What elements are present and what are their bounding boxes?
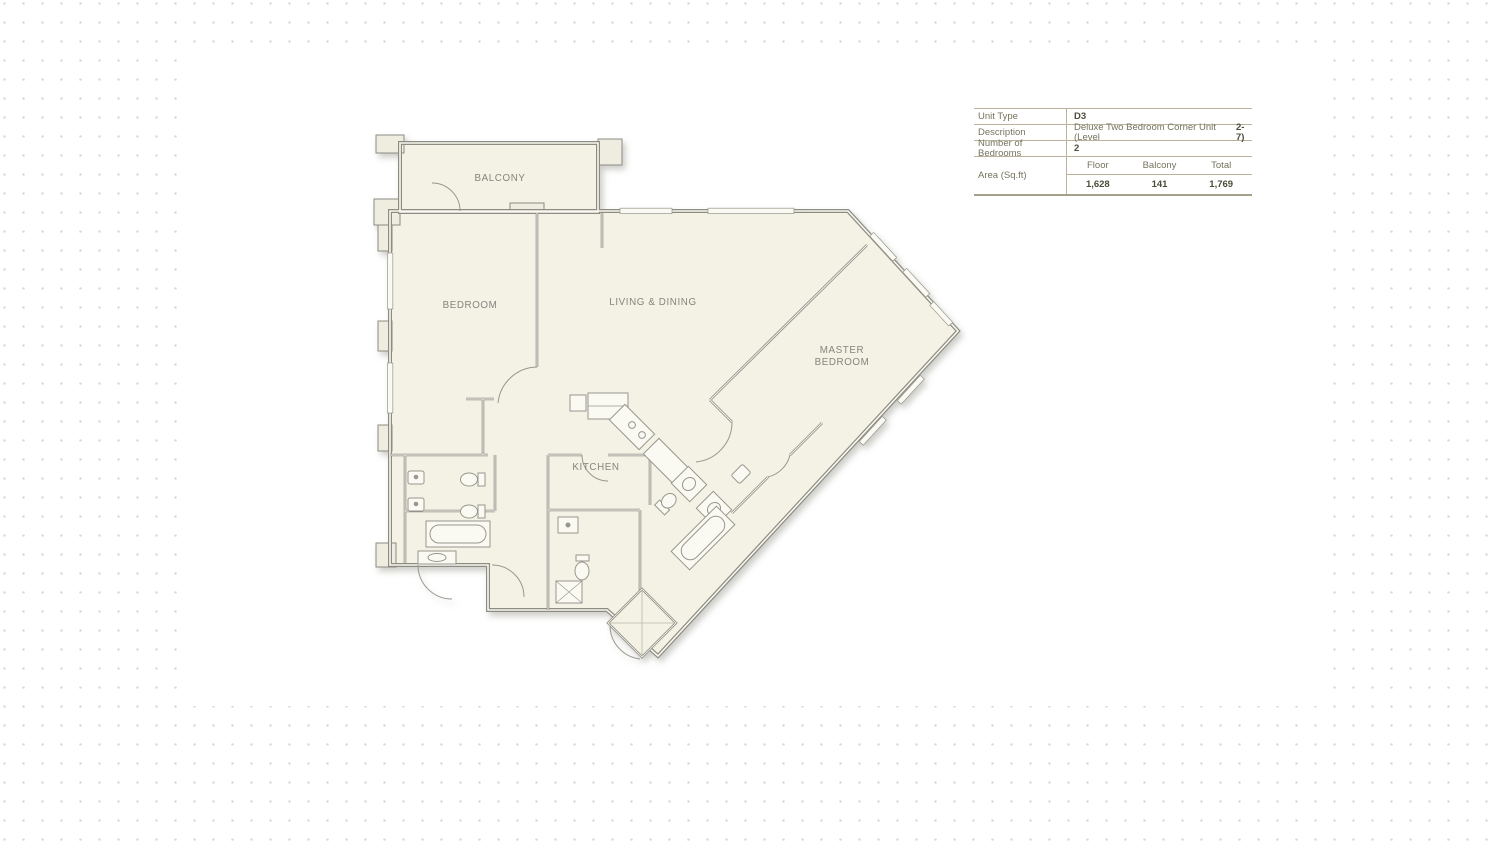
unit-info-table: Unit Type D3 Description Deluxe Two Bedr… xyxy=(974,108,1252,196)
area-value-total: 1,769 xyxy=(1190,180,1252,190)
description-value: Deluxe Two Bedroom Corner Unit (Level 2-… xyxy=(1066,125,1252,140)
room-label-bedroom: BEDROOM xyxy=(443,300,498,311)
room-label-master-line2: BEDROOM xyxy=(815,357,870,368)
area-col-total: Total xyxy=(1190,161,1252,171)
description-label: Description xyxy=(974,128,1066,138)
area-column-headers: Floor Balcony Total xyxy=(1067,157,1252,175)
floor-plan-svg: BALCONY BEDROOM LIVING & DINING MASTER B… xyxy=(370,125,990,685)
bedrooms-value: 2 xyxy=(1066,141,1252,156)
area-col-floor: Floor xyxy=(1067,161,1129,171)
room-label-kitchen: KITCHEN xyxy=(572,462,619,473)
floor-plan-drawing: BALCONY BEDROOM LIVING & DINING MASTER B… xyxy=(374,135,958,659)
area-subtable: Floor Balcony Total 1,628 141 1,769 xyxy=(1066,157,1252,194)
area-values: 1,628 141 1,769 xyxy=(1067,175,1252,194)
area-value-balcony: 141 xyxy=(1129,180,1191,190)
room-label-master-line1: MASTER xyxy=(820,345,864,356)
bedrooms-label: Number of Bedrooms xyxy=(974,139,1066,158)
table-row-area: Area (Sq.ft) Floor Balcony Total 1,628 1… xyxy=(974,156,1252,196)
unit-type-label: Unit Type xyxy=(974,112,1066,122)
area-value-floor: 1,628 xyxy=(1067,180,1129,190)
room-label-balcony: BALCONY xyxy=(474,173,525,184)
floor-plan: BALCONY BEDROOM LIVING & DINING MASTER B… xyxy=(370,125,990,685)
area-col-balcony: Balcony xyxy=(1129,161,1191,171)
room-label-living-dining: LIVING & DINING xyxy=(609,297,696,308)
page: { "colors": { "dot": "#d4d4d4", "card": … xyxy=(0,0,1500,842)
area-label: Area (Sq.ft) xyxy=(974,157,1066,194)
table-row-bedrooms: Number of Bedrooms 2 xyxy=(974,140,1252,156)
